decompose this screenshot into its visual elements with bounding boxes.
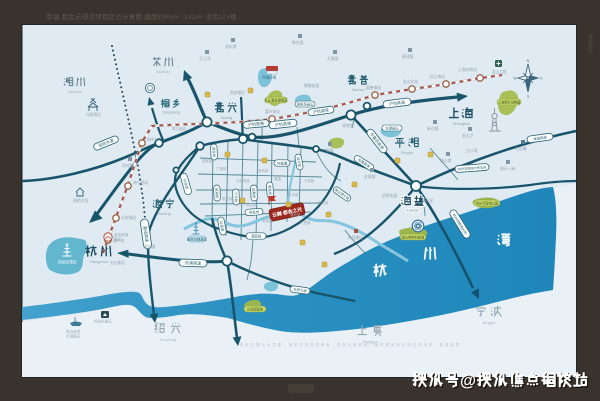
svg-text:Tongxiang: Tongxiang	[162, 110, 180, 115]
svg-text:油车港: 油车港	[225, 44, 237, 49]
svg-text:鲁迅故里: 鲁迅故里	[66, 329, 81, 334]
svg-text:绮园景区: 绮园景区	[348, 235, 363, 240]
svg-text:Jiaxing: Jiaxing	[220, 115, 232, 120]
svg-text:海天一洲: 海天一洲	[500, 166, 515, 171]
svg-text:独山港: 独山港	[440, 158, 452, 163]
svg-text:东湖景区: 东湖景区	[385, 125, 399, 130]
svg-text:盐官古城景区: 盐官古城景区	[187, 236, 208, 241]
svg-text:全塘镇: 全塘镇	[364, 174, 376, 179]
svg-text:金山嘴: 金山嘴	[515, 146, 527, 151]
svg-text:杭浦高速: 杭浦高速	[185, 259, 201, 266]
svg-text:六平线: 六平线	[234, 192, 239, 203]
svg-text:大云温泉度假区: 大云温泉度假区	[264, 97, 288, 102]
svg-text:于城镇: 于城镇	[304, 178, 315, 183]
svg-text:南湖景区: 南湖景区	[230, 90, 245, 95]
svg-text:秦山核电科技馆: 秦山核电科技馆	[402, 234, 424, 239]
svg-text:Shaoxing: Shaoxing	[160, 337, 177, 342]
svg-text:老盐线: 老盐线	[267, 185, 273, 196]
svg-text:Hangzhou: Hangzhou	[90, 259, 108, 264]
svg-text:许村镇: 许村镇	[122, 163, 134, 168]
svg-text:陶庄镇: 陶庄镇	[292, 40, 304, 45]
svg-text:海宁西站: 海宁西站	[133, 180, 148, 185]
svg-text:澉浦镇: 澉浦镇	[262, 218, 273, 223]
svg-text:硖许线: 硖许线	[212, 147, 217, 158]
svg-text:王江泾: 王江泾	[199, 56, 211, 61]
svg-text:Pinghu: Pinghu	[401, 150, 413, 155]
svg-text:杭州湾湿地公园: 杭州湾湿地公园	[476, 200, 498, 205]
svg-text:Haining: Haining	[157, 211, 171, 216]
svg-text:Ningbo: Ningbo	[483, 320, 496, 325]
svg-text:本区位图为示意图，相关内容仅供参考，具体以政府部门最终规划及: 本区位图为示意图，相关内容仅供参考，具体以政府部门最终规划及实际交付为准，敬请留…	[240, 342, 466, 347]
svg-text:盐湖线: 盐湖线	[215, 188, 220, 199]
svg-text:搜狐焦点: 搜狐焦点	[587, 33, 593, 55]
svg-text:湾南线: 湾南线	[251, 233, 262, 238]
svg-text:临平站: 临平站	[113, 238, 125, 243]
svg-text:上海虹桥站: 上海虹桥站	[458, 67, 477, 72]
svg-text:新仓镇: 新仓镇	[427, 126, 439, 131]
svg-text:盐官镇: 盐官镇	[202, 158, 213, 163]
svg-text:周王庙镇: 周王庙镇	[172, 126, 186, 131]
svg-text:广陈镇: 广陈镇	[322, 148, 334, 153]
svg-text:白塔湖湿地: 白塔湖湿地	[247, 306, 264, 311]
svg-text:林埭镇: 林埭镇	[342, 123, 354, 128]
svg-text:桐乡站: 桐乡站	[147, 137, 159, 142]
svg-text:Haiyan: Haiyan	[407, 208, 419, 213]
svg-text:魏塘街道: 魏塘街道	[304, 83, 319, 88]
svg-text:斜桥镇: 斜桥镇	[258, 168, 269, 173]
svg-text:金山卫: 金山卫	[462, 133, 474, 138]
svg-text:塘栖古镇: 塘栖古镇	[73, 198, 88, 203]
svg-text:马桥街道: 马桥街道	[236, 178, 250, 183]
svg-text:六里镇: 六里镇	[300, 220, 311, 225]
svg-text:白沙湾: 白沙湾	[466, 148, 478, 153]
svg-text:Suzhou: Suzhou	[156, 69, 170, 74]
svg-text:城东区: 城东区	[422, 198, 434, 203]
svg-text:天凝镇: 天凝镇	[327, 56, 339, 61]
svg-text:Huzhou: Huzhou	[68, 89, 82, 94]
svg-text:武原街道: 武原街道	[382, 193, 397, 198]
svg-text:百步镇: 百步镇	[288, 192, 299, 197]
svg-text:西湖风景区: 西湖风景区	[58, 260, 77, 265]
svg-text:嘉兴南站: 嘉兴南站	[265, 109, 280, 114]
svg-text:枫泾镇: 枫泾镇	[402, 54, 414, 59]
svg-text:翁金线: 翁金线	[249, 209, 260, 215]
svg-text:盐嘉线: 盐嘉线	[252, 188, 257, 199]
svg-text:幸福·都会云璟湾项目区位示意图 建面约95m²~142m²: 幸福·都会云璟湾项目区位示意图 建面约95m²~142m² 洋房12#楼	[46, 12, 237, 21]
svg-text:金山北站: 金山北站	[403, 79, 418, 84]
svg-text:周镇: 周镇	[274, 176, 281, 181]
svg-text:西塘古镇: 西塘古镇	[262, 75, 277, 80]
svg-text:@: @	[460, 372, 476, 390]
svg-text:Shanghai: Shanghai	[453, 121, 470, 126]
svg-text:长安镇站: 长安镇站	[121, 215, 136, 220]
svg-text:金山文园: 金山文园	[492, 69, 507, 74]
svg-text:湘家荡景区: 湘家荡景区	[297, 101, 315, 106]
svg-text:Jiashan: Jiashan	[351, 87, 365, 92]
svg-text:通元镇: 通元镇	[290, 212, 301, 217]
svg-text:沈荡镇: 沈荡镇	[318, 200, 329, 205]
svg-text:上海野生动物园: 上海野生动物园	[498, 99, 520, 104]
svg-text:乌镇景区: 乌镇景区	[86, 112, 101, 117]
svg-text:盐官观潮: 盐官观潮	[114, 232, 129, 237]
svg-text:柯岩风景区: 柯岩风景区	[94, 319, 112, 324]
svg-text:松江南站: 松江南站	[430, 74, 445, 79]
svg-text:郭店镇: 郭店镇	[246, 202, 257, 207]
svg-text:袁花镇: 袁花镇	[144, 244, 156, 249]
svg-text:东湖景区: 东湖景区	[66, 334, 81, 339]
svg-text:尖山新区: 尖山新区	[110, 260, 125, 265]
svg-text:袁花镇: 袁花镇	[222, 196, 233, 201]
svg-text:丁桥镇: 丁桥镇	[216, 166, 227, 171]
svg-text:08省道: 08省道	[277, 160, 288, 165]
svg-text:嘉善南站: 嘉善南站	[366, 85, 381, 90]
